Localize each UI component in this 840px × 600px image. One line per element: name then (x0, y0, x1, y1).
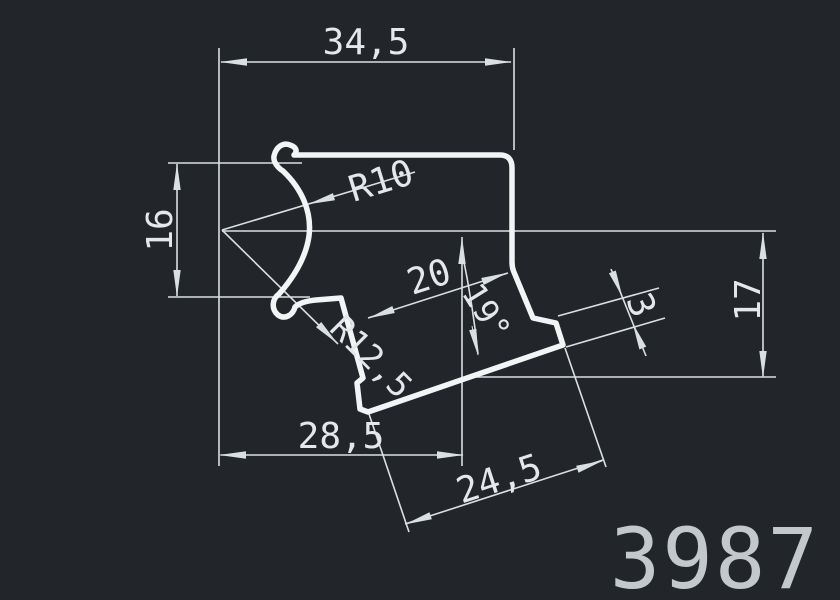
dim-radius-outer: R12,5 (322, 308, 420, 406)
arrow-245-left (406, 516, 430, 524)
dim-bottom-width: 28,5 (298, 416, 385, 457)
arrow-3-bottom (633, 324, 644, 351)
arrow-245-right (578, 461, 602, 469)
arrow-20-left (369, 310, 392, 318)
dimension-labels: 34,5 16 R10 R12,5 20 19° 3 17 28,5 24,5 (140, 22, 769, 512)
part-number: 3987 (610, 510, 820, 600)
ext-line-245-right (565, 348, 606, 467)
dim-right-height: 17 (728, 278, 769, 321)
dim-flange-top: 20 (402, 251, 456, 303)
dim-flange-bottom: 24,5 (452, 447, 547, 513)
dim-radius-inner: R10 (344, 152, 418, 210)
cad-canvas: 34,5 16 R10 R12,5 20 19° 3 17 28,5 24,5 … (0, 0, 840, 600)
dim-lip-thickness: 3 (617, 287, 663, 322)
arrow-r10 (309, 197, 333, 204)
dim-left-height: 16 (140, 208, 181, 251)
ext-line-lip-bottom (566, 318, 665, 347)
arrow-3-top (612, 271, 622, 296)
dim-top-width: 34,5 (323, 22, 410, 63)
